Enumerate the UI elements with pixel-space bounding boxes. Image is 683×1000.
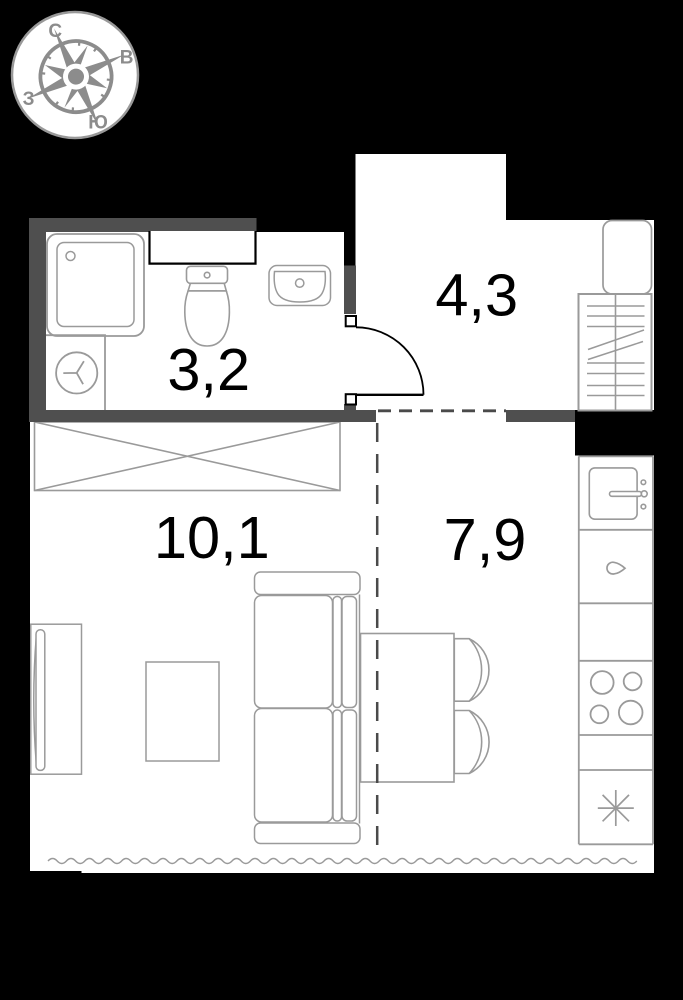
svg-text:7,9: 7,9 <box>444 506 527 573</box>
svg-text:10,1: 10,1 <box>154 504 270 571</box>
svg-text:3,2: 3,2 <box>167 336 250 403</box>
svg-text:С: С <box>48 21 62 42</box>
svg-text:В: В <box>120 48 134 69</box>
svg-text:Ю: Ю <box>88 113 108 134</box>
svg-text:4,3: 4,3 <box>435 262 518 329</box>
svg-text:З: З <box>23 89 35 110</box>
